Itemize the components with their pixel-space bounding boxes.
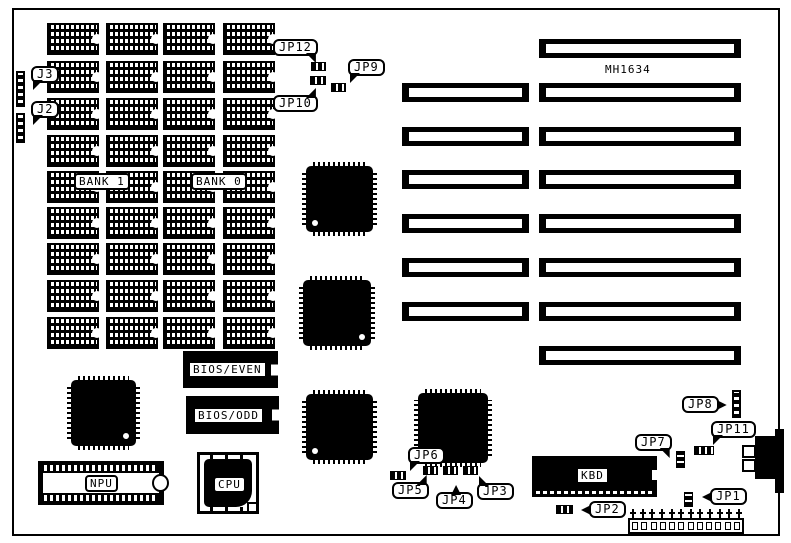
memory-chip bbox=[223, 243, 275, 275]
callout-jp12: JP12 bbox=[273, 39, 318, 56]
terminal-pin bbox=[688, 509, 694, 518]
bios-even-chip: BIOS/EVEN bbox=[183, 351, 278, 388]
qfp-chip-2 bbox=[303, 280, 371, 346]
jp4-jumper bbox=[443, 466, 458, 475]
jp6-jumper bbox=[390, 471, 406, 480]
terminal-cell bbox=[641, 522, 647, 530]
cpu-socket: CPU bbox=[197, 452, 259, 514]
terminal-pin bbox=[649, 509, 655, 518]
pin1-dot bbox=[359, 334, 365, 340]
terminal-strip-pins bbox=[630, 509, 742, 518]
memory-chip bbox=[223, 23, 275, 55]
jp7-jumper bbox=[676, 451, 685, 468]
callout-jp7: JP7 bbox=[635, 434, 672, 451]
expansion-slot bbox=[539, 39, 741, 58]
memory-chip bbox=[163, 135, 215, 167]
terminal-cell bbox=[697, 522, 703, 530]
memory-chip bbox=[163, 280, 215, 312]
memory-chip bbox=[223, 98, 275, 130]
chip-notch bbox=[271, 364, 278, 375]
callout-j2: J2 bbox=[31, 101, 59, 118]
expansion-slot bbox=[539, 170, 741, 189]
npu-socket: NPU bbox=[38, 461, 164, 505]
socket-key bbox=[247, 502, 258, 513]
jp9-jumper bbox=[331, 83, 346, 92]
memory-chip bbox=[106, 317, 158, 349]
expansion-slot-16bit-segment bbox=[402, 302, 529, 321]
terminal-pin bbox=[726, 509, 732, 518]
terminal-strip bbox=[628, 518, 744, 534]
expansion-slot-16bit-segment bbox=[402, 258, 529, 277]
kbd-chip: KBD bbox=[532, 456, 657, 497]
terminal-pin bbox=[659, 509, 665, 518]
expansion-slot bbox=[539, 258, 741, 277]
terminal-cell bbox=[734, 522, 740, 530]
memory-chip bbox=[47, 243, 99, 275]
pin1-dot bbox=[123, 433, 129, 439]
pin-ticks bbox=[210, 507, 246, 511]
jp5-jumper bbox=[423, 466, 438, 475]
board-model-text: MH1634 bbox=[605, 63, 651, 76]
memory-chip bbox=[223, 317, 275, 349]
keyboard-connector bbox=[755, 436, 776, 479]
connector-port bbox=[742, 445, 756, 458]
memory-chip bbox=[106, 23, 158, 55]
memory-chip bbox=[163, 317, 215, 349]
npu-label: NPU bbox=[85, 475, 118, 492]
memory-chip bbox=[106, 243, 158, 275]
pin-row bbox=[44, 495, 158, 501]
terminal-pin bbox=[678, 509, 684, 518]
bios-even-label: BIOS/EVEN bbox=[188, 361, 267, 378]
memory-chip bbox=[47, 317, 99, 349]
expansion-slot-16bit-segment bbox=[402, 127, 529, 146]
jp11-jumper bbox=[694, 446, 714, 455]
memory-chip bbox=[223, 207, 275, 239]
callout-jp2: JP2 bbox=[589, 501, 626, 518]
callout-jp3: JP3 bbox=[477, 483, 514, 500]
pin1-dot bbox=[312, 220, 318, 226]
callout-jp9: JP9 bbox=[348, 59, 385, 76]
callout-jp10: JP10 bbox=[273, 95, 318, 112]
socket-notch bbox=[152, 474, 169, 492]
terminal-pin bbox=[697, 509, 703, 518]
terminal-cell bbox=[678, 522, 684, 530]
memory-chip bbox=[106, 207, 158, 239]
jp10-jumper bbox=[310, 76, 326, 85]
terminal-pin bbox=[707, 509, 713, 518]
jp1-jumper bbox=[684, 492, 693, 507]
jp2-jumper bbox=[556, 505, 573, 514]
callout-jp6: JP6 bbox=[408, 447, 445, 464]
callout-jp1: JP1 bbox=[710, 488, 747, 505]
terminal-cell bbox=[632, 522, 638, 530]
memory-chip bbox=[47, 280, 99, 312]
qfp-chip-1 bbox=[306, 166, 373, 232]
memory-chip bbox=[223, 61, 275, 93]
terminal-cell bbox=[725, 522, 731, 530]
memory-chip bbox=[106, 98, 158, 130]
terminal-pin bbox=[630, 509, 636, 518]
cpu-label: CPU bbox=[213, 476, 246, 493]
kbd-label: KBD bbox=[576, 467, 609, 484]
expansion-slot bbox=[539, 127, 741, 146]
callout-j3: J3 bbox=[31, 66, 59, 83]
chip-notch bbox=[652, 470, 657, 480]
jp12-jumper bbox=[311, 62, 326, 71]
terminal-pin bbox=[640, 509, 646, 518]
expansion-slot bbox=[539, 302, 741, 321]
bank0-label: BANK 0 bbox=[191, 173, 247, 190]
pin1-dot bbox=[312, 448, 318, 454]
expansion-slot-16bit-segment bbox=[402, 214, 529, 233]
terminal-cell bbox=[669, 522, 675, 530]
callout-jp8: JP8 bbox=[682, 396, 719, 413]
terminal-cell bbox=[688, 522, 694, 530]
jp3-jumper bbox=[463, 466, 478, 475]
memory-chip bbox=[106, 61, 158, 93]
terminal-pin bbox=[736, 509, 742, 518]
keyboard-connector-bracket bbox=[775, 429, 784, 493]
pin-row bbox=[44, 465, 158, 471]
memory-chip bbox=[163, 98, 215, 130]
memory-chip bbox=[47, 23, 99, 55]
callout-jp5: JP5 bbox=[392, 482, 429, 499]
jp8-pin-header bbox=[732, 390, 741, 418]
memory-chip bbox=[106, 280, 158, 312]
memory-chip bbox=[47, 135, 99, 167]
expansion-slot bbox=[539, 214, 741, 233]
j2-pin-header bbox=[16, 113, 25, 143]
terminal-cell bbox=[651, 522, 657, 530]
expansion-slot-16bit-segment bbox=[402, 170, 529, 189]
qfp-chip-5 bbox=[71, 380, 136, 446]
chip-notch bbox=[272, 410, 279, 421]
terminal-pin bbox=[717, 509, 723, 518]
connector-port bbox=[742, 459, 756, 472]
expansion-slot bbox=[539, 83, 741, 102]
memory-chip bbox=[47, 207, 99, 239]
terminal-cell bbox=[715, 522, 721, 530]
memory-chip bbox=[163, 61, 215, 93]
callout-jp11: JP11 bbox=[711, 421, 756, 438]
motherboard-diagram: MH1634 BANK 1 BANK 0 BIOS/EVEN BIOS/ODD bbox=[0, 0, 791, 543]
callout-jp4: JP4 bbox=[436, 492, 473, 509]
terminal-cell bbox=[660, 522, 666, 530]
terminal-cell bbox=[706, 522, 712, 530]
memory-chip bbox=[163, 243, 215, 275]
memory-chip bbox=[163, 23, 215, 55]
expansion-slot-16bit-segment bbox=[402, 83, 529, 102]
terminal-pin bbox=[669, 509, 675, 518]
bank1-label: BANK 1 bbox=[74, 173, 130, 190]
j3-pin-header bbox=[16, 71, 25, 107]
memory-chip bbox=[106, 135, 158, 167]
expansion-slot bbox=[539, 346, 741, 365]
bios-odd-chip: BIOS/ODD bbox=[186, 396, 279, 434]
memory-chip bbox=[163, 207, 215, 239]
bios-odd-label: BIOS/ODD bbox=[193, 407, 264, 424]
memory-chip bbox=[223, 135, 275, 167]
memory-chip bbox=[223, 280, 275, 312]
qfp-chip-3 bbox=[306, 394, 373, 460]
